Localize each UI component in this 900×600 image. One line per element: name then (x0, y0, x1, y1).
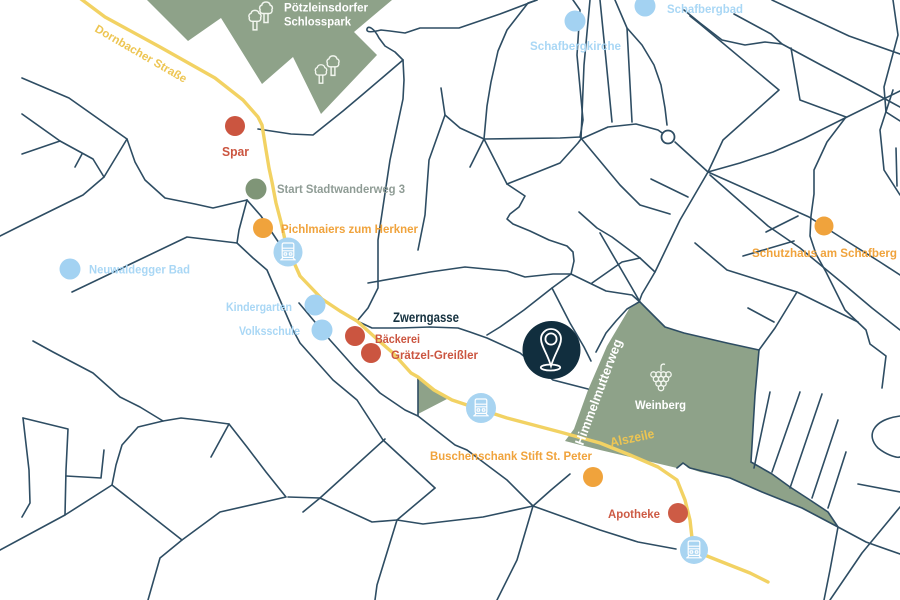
svg-text:Spar: Spar (222, 145, 249, 159)
svg-text:Apotheke: Apotheke (608, 507, 660, 521)
svg-text:Schutzhaus am Schafberg: Schutzhaus am Schafberg (752, 248, 897, 260)
svg-text:Bäckerei: Bäckerei (375, 332, 420, 346)
svg-text:Buschenschank Stift St. Peter: Buschenschank Stift St. Peter (430, 451, 593, 463)
svg-text:Schafbergbad: Schafbergbad (667, 4, 743, 16)
svg-text:Neuwaldegger Bad: Neuwaldegger Bad (89, 265, 190, 277)
svg-text:Pötzleinsdorfer: Pötzleinsdorfer (284, 3, 369, 15)
svg-text:Pichlmaiers zum Herkner: Pichlmaiers zum Herkner (281, 224, 419, 236)
svg-text:Weinberg: Weinberg (635, 398, 686, 412)
svg-text:Grätzel-Greißler: Grätzel-Greißler (391, 348, 478, 362)
svg-text:Schafbergkirche: Schafbergkirche (530, 41, 621, 53)
svg-text:Start Stadtwanderweg 3: Start Stadtwanderweg 3 (277, 184, 405, 196)
svg-text:Schlosspark: Schlosspark (284, 17, 352, 29)
svg-text:Volksschule: Volksschule (239, 326, 300, 338)
svg-text:Kindergarten: Kindergarten (226, 302, 292, 314)
svg-text:Zwerngasse: Zwerngasse (393, 310, 459, 325)
